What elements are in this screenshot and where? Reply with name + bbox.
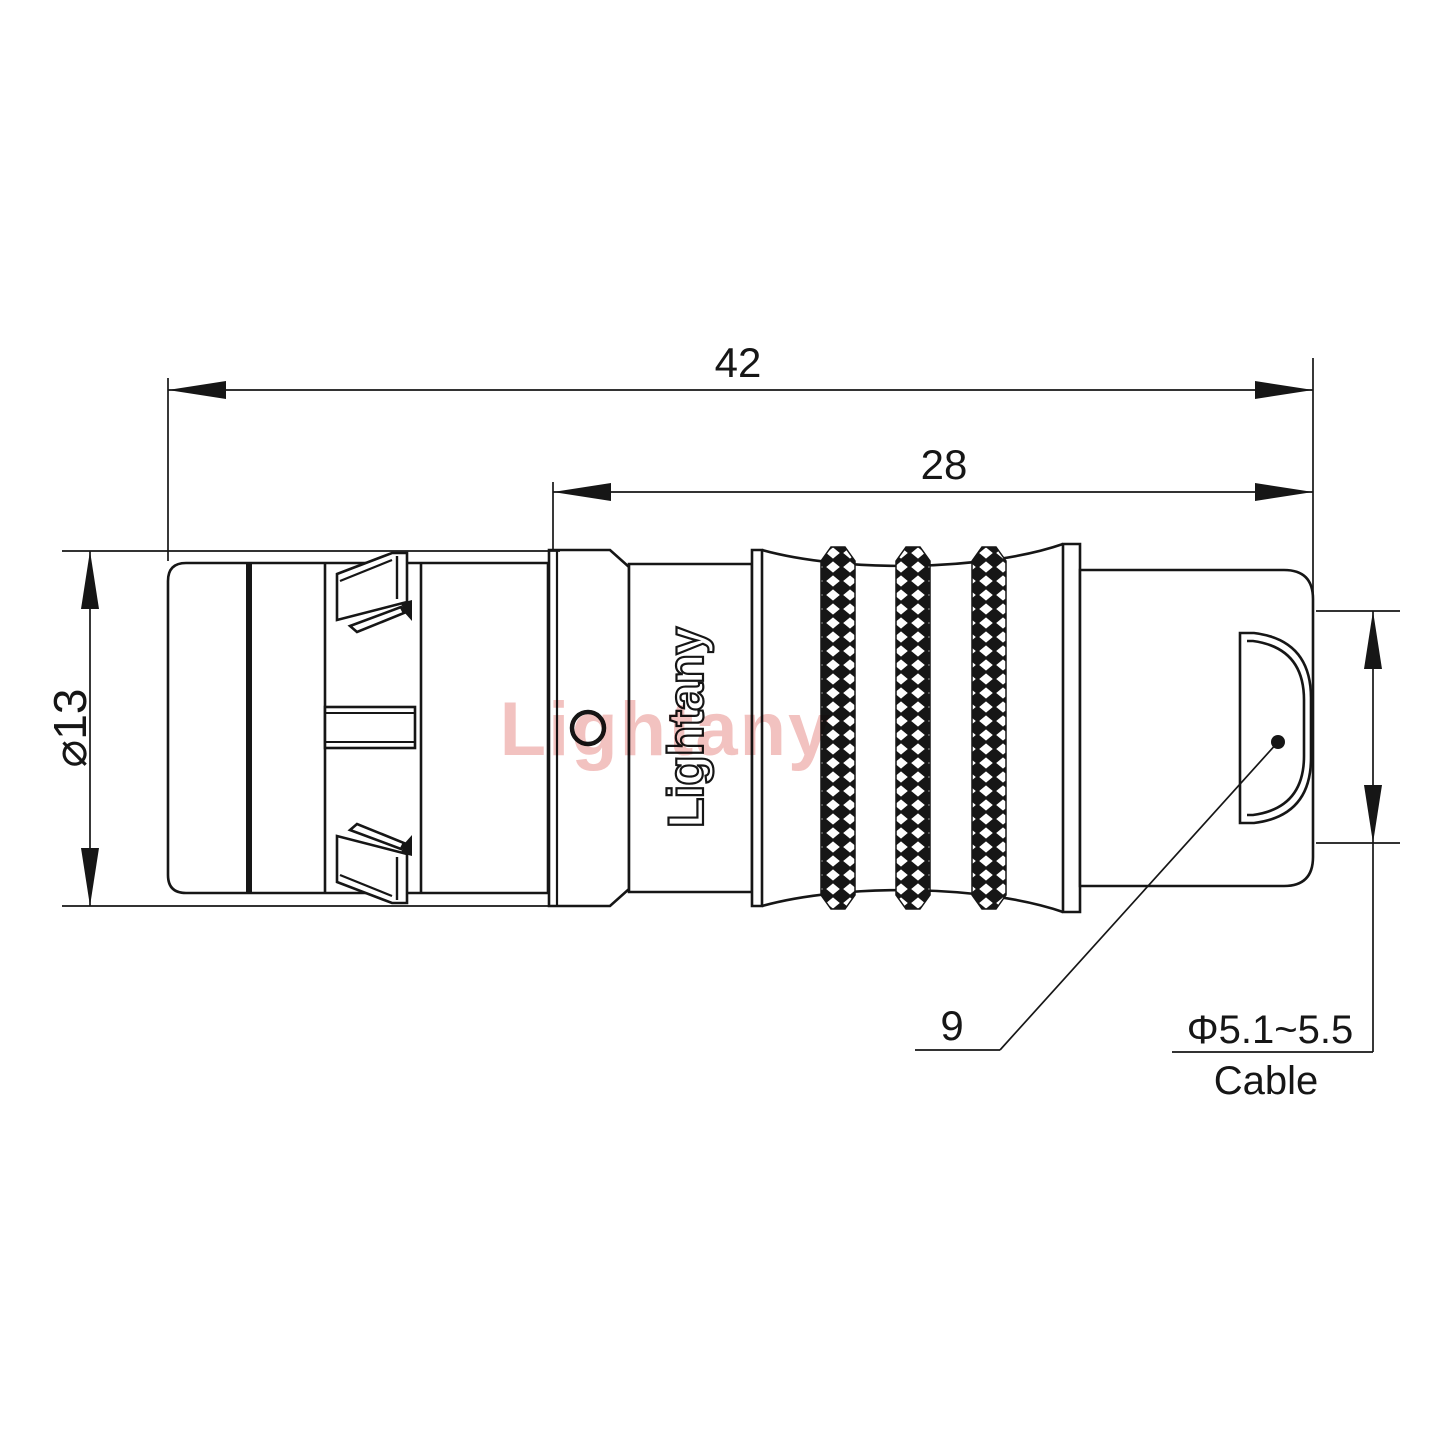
knurl-band bbox=[972, 547, 1006, 909]
dim-9-label: 9 bbox=[940, 1002, 963, 1049]
arrowhead-top bbox=[1364, 611, 1382, 669]
dim-42-label: 42 bbox=[715, 339, 762, 386]
arrowhead-bottom bbox=[1364, 785, 1382, 843]
arrowhead-bottom bbox=[81, 848, 99, 906]
front-shell bbox=[168, 553, 548, 903]
arrowhead-top bbox=[81, 551, 99, 609]
dim-28-label: 28 bbox=[921, 441, 968, 488]
dim-13-label: ⌀13 bbox=[44, 689, 96, 768]
arrowhead-left bbox=[553, 483, 611, 501]
cable-bushing bbox=[1080, 570, 1313, 886]
arrowhead-left bbox=[168, 381, 226, 399]
latch-window bbox=[325, 707, 415, 748]
dim-rear-28: 28 bbox=[553, 441, 1313, 551]
connector-technical-drawing: Lightany 42 28 bbox=[0, 0, 1440, 1440]
arrowhead-right bbox=[1255, 483, 1313, 501]
cable-window-outer bbox=[1240, 633, 1311, 823]
arrowhead-right bbox=[1255, 381, 1313, 399]
watermark: Lightany bbox=[500, 687, 833, 772]
dim-overall-42: 42 bbox=[168, 339, 1313, 597]
cable-diameter-label: Φ5.1~5.5 bbox=[1187, 1008, 1353, 1052]
knurl-band bbox=[896, 547, 930, 909]
boot-flare-cap bbox=[1063, 544, 1080, 912]
drawing-page: Lightany 42 28 bbox=[0, 0, 1440, 1440]
cable-word-label: Cable bbox=[1214, 1059, 1319, 1103]
